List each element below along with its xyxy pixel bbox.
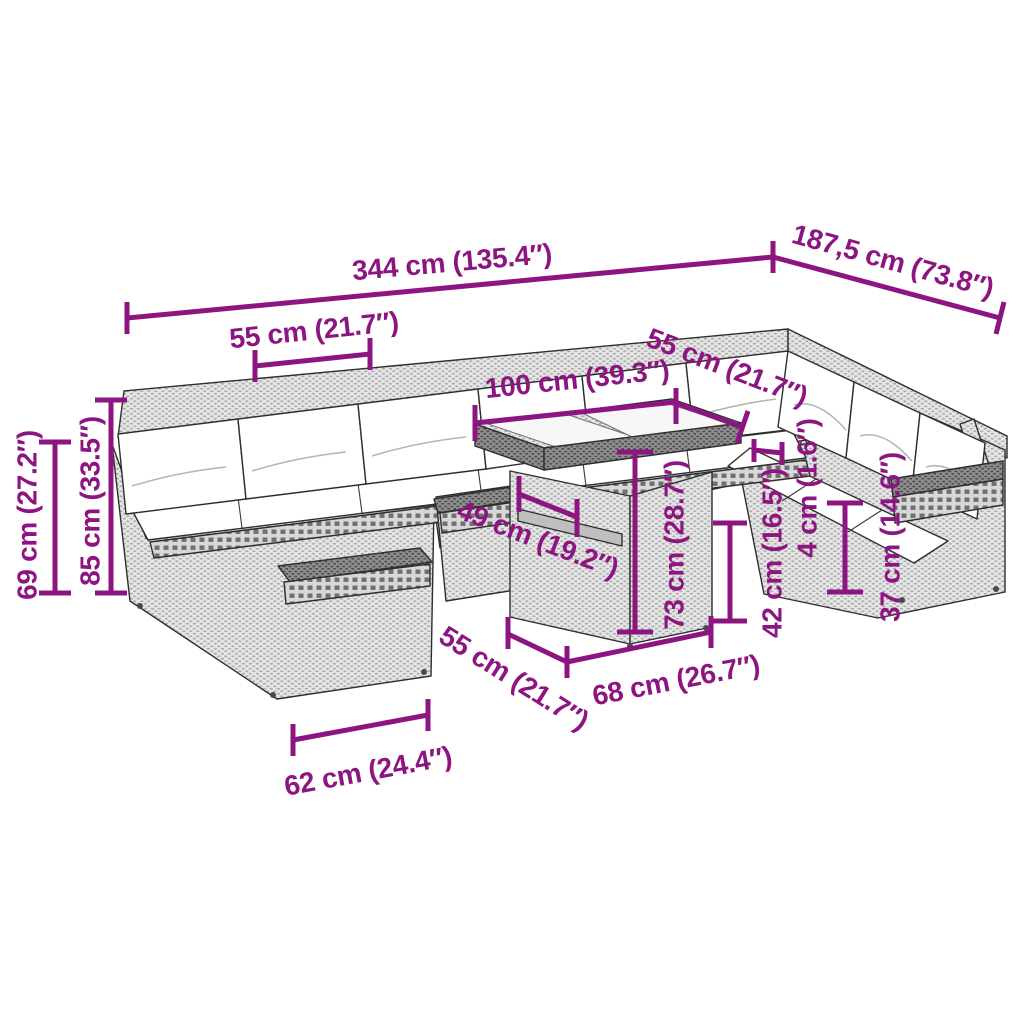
back-pillow-1 bbox=[118, 419, 246, 514]
dim-label-height-69: 69 cm (27.2″) bbox=[12, 430, 43, 600]
dimension-diagram: 344 cm (135.4″) 187,5 cm (73.8″) 55 cm (… bbox=[0, 0, 1024, 1024]
dim-label-height-42: 42 cm (16.5″) bbox=[757, 468, 788, 638]
foot-dot bbox=[270, 692, 276, 698]
dim-label-module-width-62: 62 cm (24.4″) bbox=[282, 740, 455, 801]
dim-label-height-37: 37 cm (14.6″) bbox=[875, 452, 906, 622]
dim-label-table-base-width: 68 cm (26.7″) bbox=[590, 649, 763, 712]
diagram-canvas: 344 cm (135.4″) 187,5 cm (73.8″) 55 cm (… bbox=[0, 0, 1024, 1024]
dim-label-table-top-thickness: 4 cm (1.6″) bbox=[792, 418, 823, 557]
foot-dot bbox=[993, 586, 999, 592]
back-pillow-3 bbox=[358, 389, 486, 484]
dim-line-height-42 bbox=[713, 523, 747, 621]
dim-label-seat-module-width-left: 55 cm (21.7″) bbox=[228, 306, 400, 355]
foot-dot bbox=[137, 603, 143, 609]
dim-label-table-height: 73 cm (28.7″) bbox=[659, 460, 690, 630]
foot-dot bbox=[421, 669, 427, 675]
dim-label-height-85: 85 cm (33.5″) bbox=[75, 416, 106, 586]
back-pillow-2 bbox=[238, 404, 366, 499]
dim-line-height-69 bbox=[39, 442, 71, 593]
